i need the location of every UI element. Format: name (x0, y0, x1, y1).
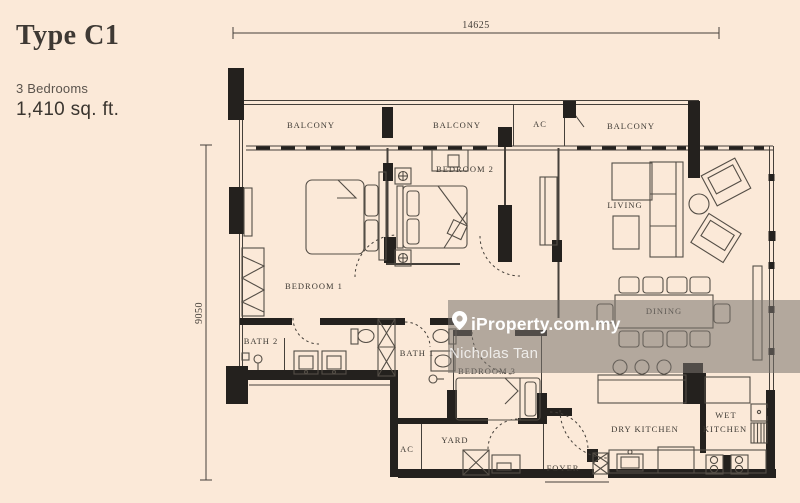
room-label-ac-lower: AC (400, 444, 414, 454)
room-label-bath-1: BATH 1 (400, 348, 435, 358)
room-label-living: LIVING (607, 200, 642, 210)
room-label-balcony-1: BALCONY (287, 120, 335, 130)
watermark: iProperty.com.my Nicholas Tan (448, 300, 800, 373)
watermark-brand: iProperty.com.my (471, 314, 621, 334)
room-label-foyer: FOYER (547, 463, 580, 473)
dimension-top: 14625 (233, 20, 719, 39)
dimension-left-label: 9050 (194, 302, 205, 324)
hall-cabinet-icon (540, 177, 557, 245)
bedroom1-wardrobe-icon (242, 188, 264, 316)
room-label-balcony-2: BALCONY (433, 120, 481, 130)
watermark-agent: Nicholas Tan (449, 345, 538, 362)
room-label-wet-kitchen-line1: WET (715, 410, 736, 420)
room-label-bedroom-1: BEDROOM 1 (285, 281, 343, 291)
room-label-yard: YARD (441, 435, 468, 445)
room-label-balcony-3: BALCONY (607, 121, 655, 131)
bedroom1-bed-icon (306, 172, 386, 260)
room-label-dry-kitchen: DRY KITCHEN (611, 424, 679, 434)
dimension-top-label: 14625 (462, 20, 490, 31)
dimension-left: 9050 (194, 145, 212, 480)
room-label-wet-kitchen-line2: KITCHEN (703, 424, 747, 434)
floor-plan-page: Type C1 3 Bedrooms 1,410 sq. ft. 14625 9… (0, 0, 800, 503)
room-label-bath-2: BATH 2 (244, 336, 279, 346)
floor-plan-drawing: 14625 9050 (0, 0, 800, 503)
room-label-bedroom-2: BEDROOM 2 (436, 164, 494, 174)
room-label-ac-upper: AC (533, 119, 547, 129)
bedroom3-bed-icon (456, 378, 540, 420)
